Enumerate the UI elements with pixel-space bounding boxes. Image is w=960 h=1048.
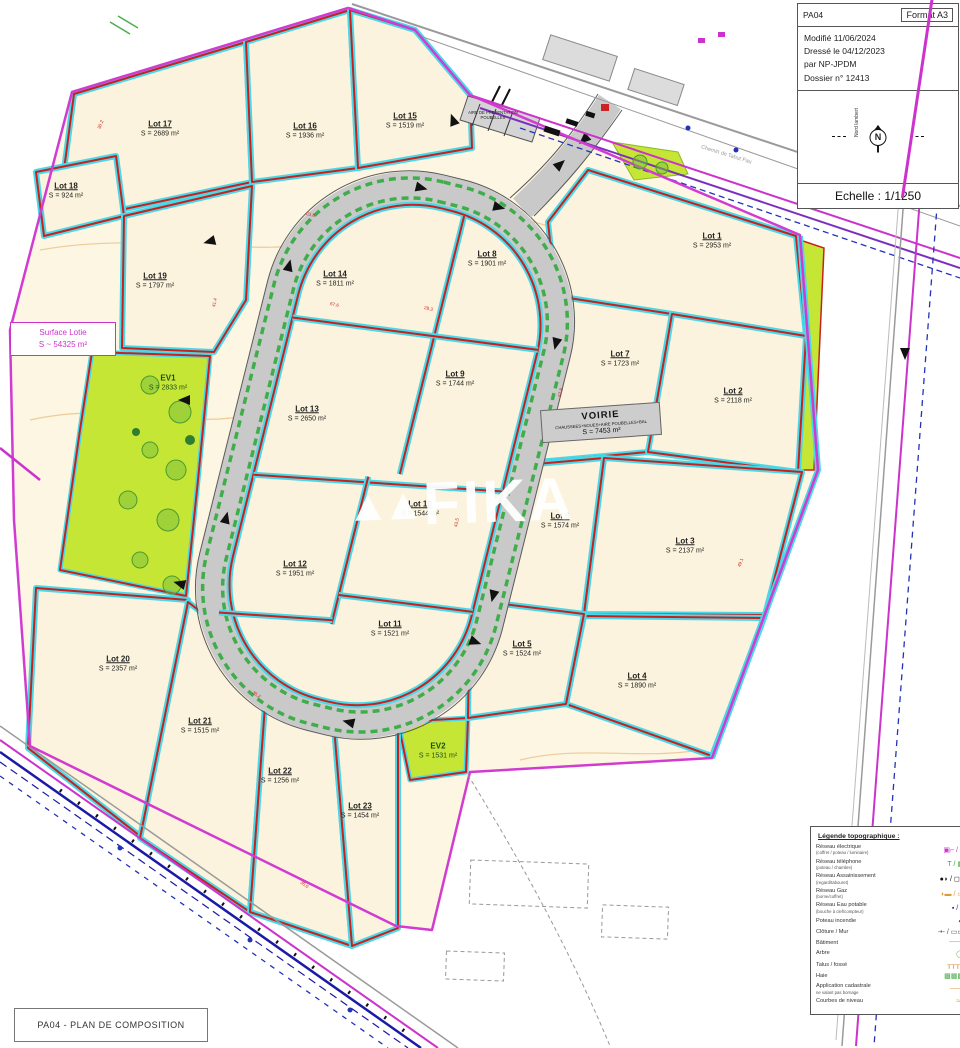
legend-item-symbol-icon: ◗▬ / ▭	[940, 890, 960, 898]
lot-label-23: Lot 23S = 1454 m²	[341, 801, 379, 819]
legend-item-text: Réseau électrique(coffret / poteau / lum…	[816, 844, 868, 855]
title-block-modified: Modifié 11/06/2024	[804, 32, 952, 45]
lot-area: S = 1890 m²	[618, 682, 656, 689]
lot-label-5: Lot 5S = 1524 m²	[503, 639, 541, 657]
legend-item-6: Clôture / Mur-•- / ▭▭	[816, 928, 960, 936]
legend-item-label: Talus / fossé	[816, 962, 847, 968]
lot-name: Lot 20	[99, 654, 137, 663]
lot-label-16: Lot 16S = 1936 m²	[286, 121, 324, 139]
composition-plan: Lot 1S = 2953 m²Lot 2S = 2118 m²Lot 3S =…	[0, 0, 960, 1048]
legend-item-symbol-icon: ▣⌐ / ⌐	[943, 846, 960, 854]
lot-label-14: Lot 14S = 1811 m²	[316, 269, 354, 287]
dimension-label-0: 67.6	[330, 301, 340, 308]
watermark: ▲▲ FIKA	[345, 464, 576, 541]
legend-item-3: Réseau Gaz(borne/coffret)◗▬ / ▭	[816, 888, 960, 899]
legend-item-label: Réseau Eau potable	[816, 902, 867, 908]
surface-lotie-box: Surface Lotie S ~ 54325 m²	[10, 322, 116, 356]
lot-name: Lot 3	[666, 536, 704, 545]
title-block: PA04 Format A3 Modifié 11/06/2024 Dressé…	[797, 3, 959, 209]
lot-area: S = 1936 m²	[286, 132, 324, 139]
lot-label-19: Lot 19S = 1797 m²	[136, 271, 174, 289]
lot-area: S = 2118 m²	[714, 397, 752, 404]
lot-label-8: Lot 8S = 1901 m²	[468, 249, 506, 267]
lot-name: Lot 2	[714, 386, 752, 395]
legend-box: Légende topographique : Réseau électriqu…	[810, 826, 960, 1015]
lot-area: S = 1256 m²	[261, 777, 299, 784]
lot-label-15: Lot 15S = 1519 m²	[386, 111, 424, 129]
lot-name: Lot 18	[49, 181, 83, 190]
lot-label-7: Lot 7S = 1723 m²	[601, 349, 639, 367]
lot-area: S = 1723 m²	[601, 360, 639, 367]
legend-item-sublabel: (bouche à clef/compteur)	[816, 909, 867, 914]
legend-item-text: Courbes de niveau	[816, 998, 863, 1004]
north-compass: ↑ N Nord lambert	[798, 91, 958, 183]
title-block-dossier: Dossier n° 12413	[804, 72, 952, 85]
legend-item-text: Réseau téléphone(poteau / chambre)	[816, 859, 861, 870]
lot-name: Lot 17	[141, 119, 179, 128]
lot-name: Lot 14	[316, 269, 354, 278]
green-space-label-ev1: EV1S = 2833 m²	[149, 373, 187, 391]
dimension-label-1: 28.3	[424, 305, 434, 312]
lot-name: Lot 23	[341, 801, 379, 810]
legend-item-text: Haie	[816, 973, 828, 979]
legend-item-symbol-icon: ◯	[956, 950, 960, 958]
lot-name: Lot 1	[693, 231, 731, 240]
watermark-logo: ▲▲	[345, 479, 418, 531]
lot-label-20: Lot 20S = 2357 m²	[99, 654, 137, 672]
legend-item-0: Réseau électrique(coffret / poteau / lum…	[816, 844, 960, 855]
legend-item-11: Application cadastralene valant pas born…	[816, 983, 960, 994]
title-block-code: PA04	[803, 10, 823, 20]
lot-name: Lot 12	[276, 559, 314, 568]
legend-item-2: Réseau Assainissement(regard/tabouret)●◗…	[816, 873, 960, 884]
dimension-label-9: 35.0	[299, 880, 309, 889]
bin-area-label-line2: POUBELLES	[462, 115, 524, 120]
north-letter: N	[870, 129, 887, 146]
lot-name: Lot 9	[436, 369, 474, 378]
legend-item-symbol-icon: ●◗ / ◻◗	[940, 875, 960, 883]
compass-dash-left-icon	[832, 136, 846, 137]
legend-item-text: Réseau Assainissement(regard/tabouret)	[816, 873, 876, 884]
legend-item-symbol-icon: ▪ / ▮	[952, 904, 960, 912]
lot-area: S = 2357 m²	[99, 665, 137, 672]
lot-area: S = 1744 m²	[436, 380, 474, 387]
legend-title: Légende topographique :	[818, 833, 960, 840]
legend-item-symbol-icon: ——	[950, 985, 960, 992]
legend-item-8: Arbre◯	[816, 950, 960, 958]
legend-item-sublabel: (coffret / poteau / luminaire)	[816, 850, 868, 855]
legend-item-4: Réseau Eau potable(bouche à clef/compteu…	[816, 902, 960, 913]
lot-name: Lot 5	[503, 639, 541, 648]
lot-area: S = 2689 m²	[141, 130, 179, 137]
legend-item-text: Bâtiment	[816, 940, 838, 946]
lot-area: S = 2953 m²	[693, 242, 731, 249]
legend-item-9: Talus / fossé┰┰┰┰	[816, 961, 960, 969]
lot-name: Lot 13	[288, 404, 326, 413]
surface-lotie-area: S ~ 54325 m²	[13, 339, 113, 351]
legend-item-symbol-icon: ┰┰┰┰	[947, 961, 960, 969]
lot-name: Lot 19	[136, 271, 174, 280]
lot-area: S = 1951 m²	[276, 570, 314, 577]
lot-name: Lot 16	[286, 121, 324, 130]
lot-area: S = 924 m²	[49, 192, 83, 199]
legend-item-sublabel: (regard/tabouret)	[816, 880, 876, 885]
lot-area: S = 1901 m²	[468, 260, 506, 267]
title-block-author: par NP-JPDM	[804, 58, 952, 71]
legend-item-sublabel: ne valant pas bornage	[816, 990, 871, 995]
legend-item-label: Réseau Assainissement	[816, 873, 876, 879]
legend-item-label: Clôture / Mur	[816, 929, 848, 935]
legend-item-12: Courbes de niveau≈≈	[816, 998, 960, 1005]
lot-name: Lot 4	[618, 671, 656, 680]
lot-name: Lot 15	[386, 111, 424, 120]
legend-item-label: Application cadastrale	[816, 983, 871, 989]
legend-item-symbol-icon: T / ▦	[947, 860, 960, 868]
legend-item-label: Arbre	[816, 950, 830, 956]
legend-item-label: Haie	[816, 973, 828, 979]
lot-label-11: Lot 11S = 1521 m²	[371, 619, 409, 637]
legend-item-text: Arbre	[816, 950, 830, 956]
lot-label-12: Lot 12S = 1951 m²	[276, 559, 314, 577]
legend-item-label: Bâtiment	[816, 940, 838, 946]
legend-body: Réseau électrique(coffret / poteau / lum…	[816, 844, 960, 1005]
legend-item-text: Réseau Gaz(borne/coffret)	[816, 888, 847, 899]
legend-item-text: Talus / fossé	[816, 962, 847, 968]
lot-label-4: Lot 4S = 1890 m²	[618, 671, 656, 689]
legend-item-symbol-icon: -•- / ▭▭	[938, 928, 960, 936]
legend-item-label: Courbes de niveau	[816, 998, 863, 1004]
dimension-label-2: 57.8	[557, 388, 564, 398]
lot-label-2: Lot 2S = 2118 m²	[714, 386, 752, 404]
legend-item-text: Poteau incendie	[816, 918, 856, 924]
lot-area: S = 1521 m²	[371, 630, 409, 637]
surface-lotie-title: Surface Lotie	[13, 327, 113, 339]
bin-area-label: AIRE DE PRESENTATION POUBELLES	[462, 110, 524, 121]
lot-area: S = 2137 m²	[666, 547, 704, 554]
title-block-drawn: Dressé le 04/12/2023	[804, 45, 952, 58]
legend-item-symbol-icon: ▩▩▩	[944, 972, 960, 980]
green-space-area: S = 1531 m²	[419, 752, 457, 759]
lot-name: Lot 8	[468, 249, 506, 258]
lot-label-21: Lot 21S = 1515 m²	[181, 716, 219, 734]
lot-label-22: Lot 22S = 1256 m²	[261, 766, 299, 784]
dimension-label-5: 41.4	[211, 298, 218, 308]
legend-item-sublabel: (borne/coffret)	[816, 894, 847, 899]
green-space-name: EV1	[149, 373, 187, 382]
north-caption: Nord lambert	[854, 108, 860, 137]
lot-area: S = 1519 m²	[386, 122, 424, 129]
legend-item-5: Poteau incendie◆	[816, 917, 960, 925]
green-space-label-ev2: EV2S = 1531 m²	[419, 741, 457, 759]
dimension-label-7: 23.8	[306, 211, 316, 218]
legend-item-symbol-icon: ≈≈	[956, 998, 960, 1005]
lot-name: Lot 11	[371, 619, 409, 628]
lot-label-3: Lot 3S = 2137 m²	[666, 536, 704, 554]
lot-label-9: Lot 9S = 1744 m²	[436, 369, 474, 387]
lot-name: Lot 7	[601, 349, 639, 358]
lot-area: S = 2650 m²	[288, 415, 326, 422]
legend-item-1: Réseau téléphone(poteau / chambre)T / ▦	[816, 859, 960, 870]
lot-name: Lot 22	[261, 766, 299, 775]
dimension-label-8: 49.1	[737, 557, 745, 567]
legend-item-label: Poteau incendie	[816, 918, 856, 924]
legend-item-text: Clôture / Mur	[816, 929, 848, 935]
legend-item-symbol-icon: ───	[949, 939, 960, 946]
legend-item-sublabel: (poteau / chambre)	[816, 865, 861, 870]
lot-area: S = 1524 m²	[503, 650, 541, 657]
lot-area: S = 1515 m²	[181, 727, 219, 734]
green-space-area: S = 2833 m²	[149, 384, 187, 391]
legend-item-7: Bâtiment───	[816, 939, 960, 946]
legend-item-text: Application cadastralene valant pas born…	[816, 983, 871, 994]
lot-label-18: Lot 18S = 924 m²	[49, 181, 83, 199]
scale-label: Echelle : 1/1250	[798, 183, 958, 208]
dimension-label-3: 30.2	[96, 119, 104, 129]
legend-item-text: Réseau Eau potable(bouche à clef/compteu…	[816, 902, 867, 913]
footer-title: PA04 - PLAN DE COMPOSITION	[37, 1020, 184, 1030]
lot-area: S = 1811 m²	[316, 280, 354, 287]
lot-label-13: Lot 13S = 2650 m²	[288, 404, 326, 422]
lot-label-17: Lot 17S = 2689 m²	[141, 119, 179, 137]
lot-area: S = 1454 m²	[341, 812, 379, 819]
watermark-text: FIKA	[422, 464, 576, 538]
dimension-label-6: 35.2	[251, 690, 261, 699]
footer-title-box: PA04 - PLAN DE COMPOSITION	[14, 1008, 208, 1042]
lot-name: Lot 21	[181, 716, 219, 725]
lot-label-1: Lot 1S = 2953 m²	[693, 231, 731, 249]
legend-item-10: Haie▩▩▩	[816, 972, 960, 980]
green-space-name: EV2	[419, 741, 457, 750]
lot-area: S = 1797 m²	[136, 282, 174, 289]
